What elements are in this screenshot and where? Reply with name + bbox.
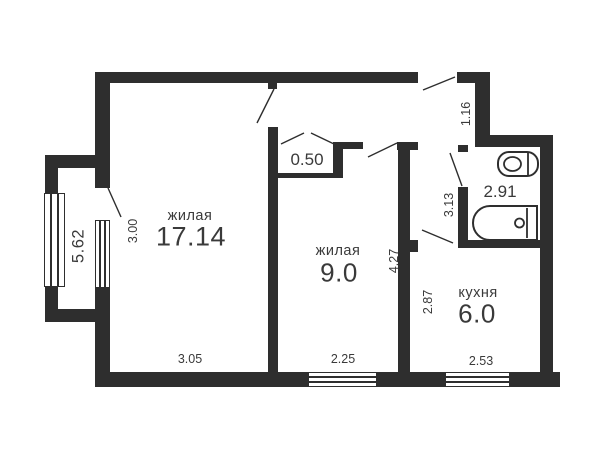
kitchen-window xyxy=(445,372,510,387)
kitchen-area-label: 6.0 xyxy=(458,299,496,330)
balcony-window xyxy=(44,193,65,287)
closet-door-left-icon xyxy=(281,133,304,144)
dim-living2-width: 2.25 xyxy=(331,352,355,366)
living2-window xyxy=(308,372,377,387)
balcony-bottom-wall xyxy=(45,309,110,322)
entry-top-block xyxy=(457,72,490,83)
dim-living1-length: 3.05 xyxy=(178,352,202,366)
dim-kitchen-length: 2.87 xyxy=(421,290,435,314)
entrance-door-icon xyxy=(423,77,455,90)
balcony-door-leader-line xyxy=(108,188,121,217)
dim-living2-length: 4.27 xyxy=(387,249,401,273)
bathroom-bottom-wall xyxy=(458,240,553,248)
closet-bottom-wall xyxy=(268,173,343,178)
bathroom-left-wall xyxy=(458,187,468,240)
living1-balcony-window xyxy=(95,220,110,288)
bathroom-area-label: 2.91 xyxy=(483,182,516,202)
living2-area-label: 9.0 xyxy=(320,258,358,289)
right-wall xyxy=(540,135,553,372)
dim-hall-length: 3.13 xyxy=(442,193,456,217)
left-wall-upper xyxy=(95,72,110,188)
living1-door-icon xyxy=(257,89,274,123)
divider-door-stub xyxy=(268,83,277,89)
floor-plan: жилая 17.14 жилая 9.0 кухня 6.0 2.91 0.5… xyxy=(0,0,613,460)
doors-and-fixtures-layer xyxy=(0,0,613,460)
toilet-icon xyxy=(498,152,538,176)
dim-entry-width: 1.16 xyxy=(459,102,473,126)
dim-kitchen-width: 2.53 xyxy=(469,354,493,368)
living1-area-label: 17.14 xyxy=(156,222,226,253)
bathtub-icon xyxy=(473,206,537,240)
balcony-left-wall-upper xyxy=(45,155,58,193)
closet-area-label: 0.50 xyxy=(290,150,323,170)
living2-door-icon xyxy=(368,143,397,157)
closet-door-right-icon xyxy=(311,133,334,144)
bathroom-door-icon xyxy=(450,153,462,186)
top-wall xyxy=(95,72,418,83)
entry-right-wall xyxy=(475,83,490,135)
dim-balcony-length: 5.62 xyxy=(70,229,89,263)
hall-wall-right-cap xyxy=(397,142,418,150)
room-divider-wall xyxy=(268,127,278,372)
hall-wall-left-segment xyxy=(333,142,363,149)
kitchen-door-icon xyxy=(422,230,453,243)
kitchen-door-stub xyxy=(410,240,418,252)
bathroom-left-wall-stub xyxy=(458,145,468,152)
dim-living1-width: 3.00 xyxy=(126,219,140,243)
